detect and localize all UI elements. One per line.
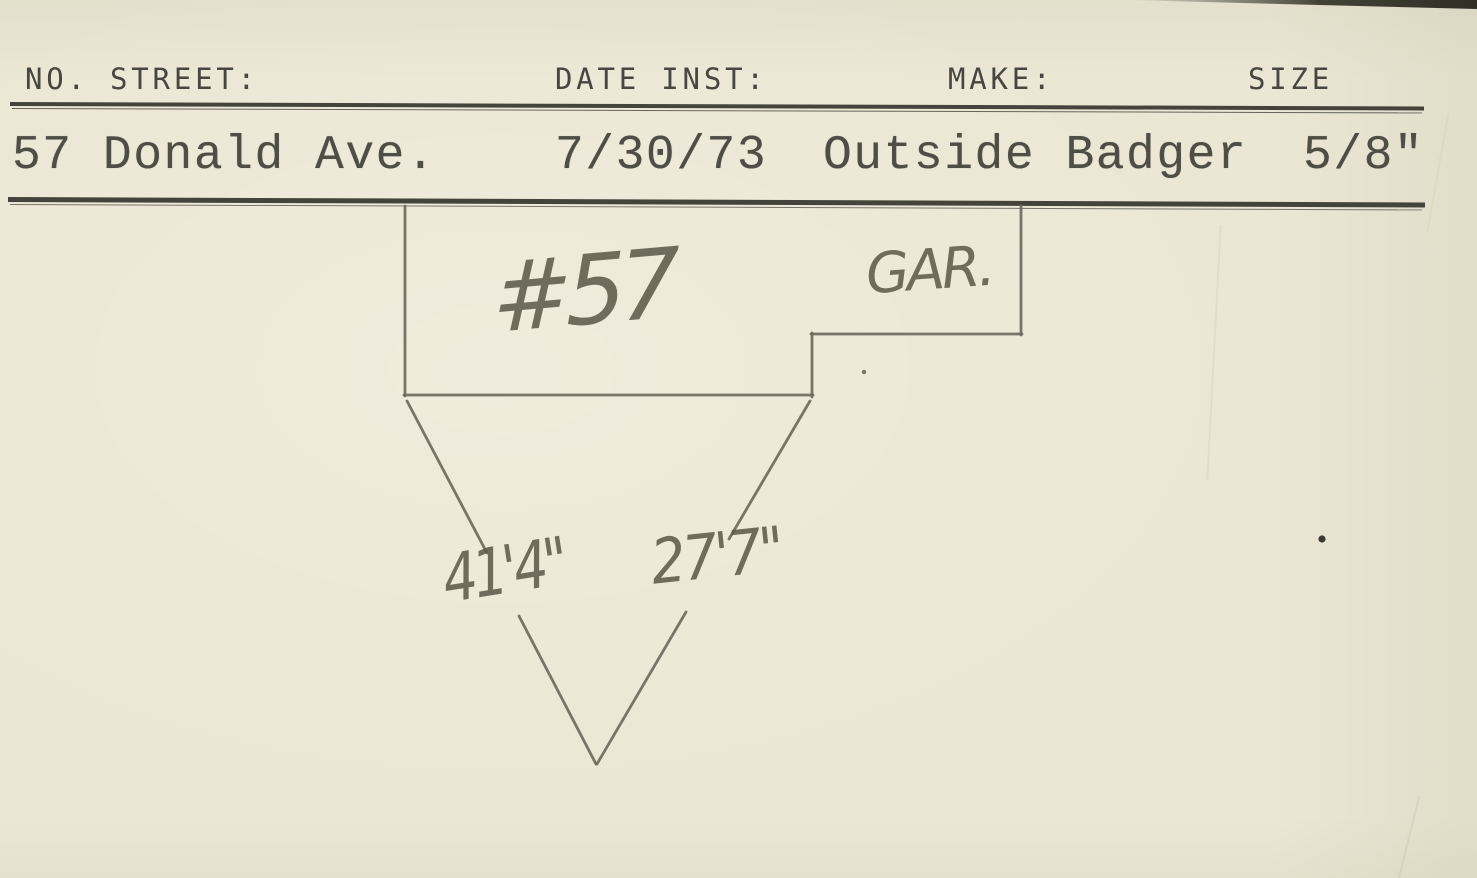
plot-sketch — [0, 0, 1477, 878]
utility-record-card: NO. STREET: DATE INST: MAKE: SIZE 57 Don… — [0, 0, 1477, 878]
pencil-dot — [862, 370, 866, 374]
tie-line-right-lower — [597, 612, 686, 764]
tie-measurement-left-label: 41'4" — [438, 529, 569, 613]
house-number-label: #57 — [492, 235, 675, 347]
tie-measurement-right-label: 27'7" — [648, 518, 785, 593]
tie-line-left-lower — [519, 616, 596, 764]
tie-line-left-upper — [407, 401, 487, 553]
ink-speck — [1318, 535, 1325, 542]
garage-label: GAR. — [864, 239, 994, 304]
